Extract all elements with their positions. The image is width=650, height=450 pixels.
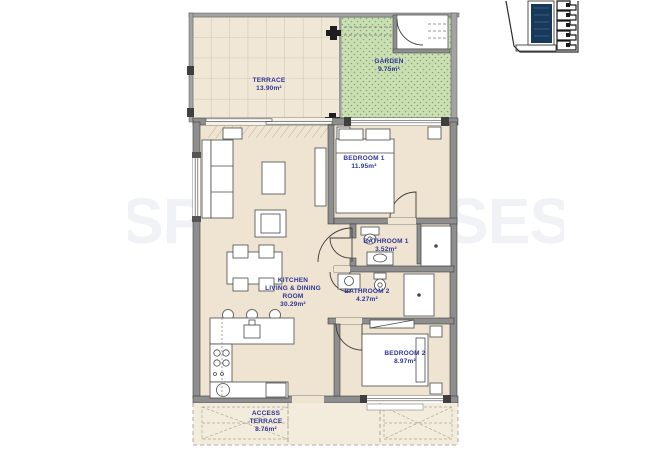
room-label-bedroom-1: BEDROOM 1 11.95m²	[343, 155, 384, 171]
room-label-access-terrace: ACCESS TERRACE 8.76m²	[250, 410, 283, 434]
floor-plan-page: SPAINHOUSES	[0, 0, 650, 450]
highlighted-unit	[531, 4, 552, 43]
room-label-kitchen-living-dining: KITCHEN LIVING & DINING ROOM 30.29m²	[265, 277, 321, 309]
site-plan-inset	[506, 1, 578, 52]
access-terrace-area	[193, 403, 458, 445]
room-label-bathroom-1: BATHROOM 1 3.52m²	[363, 238, 408, 254]
room-label-bathroom-2: BATHROOM 2 4.27m²	[344, 288, 389, 304]
terrace-area	[193, 17, 340, 120]
room-label-terrace: TERRACE 13.90m²	[253, 77, 286, 93]
room-label-garden: GARDEN 9.75m²	[374, 58, 403, 74]
room-label-bedroom-2: BEDROOM 2 8.97m²	[384, 350, 425, 366]
floor-plan-drawing	[0, 0, 650, 450]
